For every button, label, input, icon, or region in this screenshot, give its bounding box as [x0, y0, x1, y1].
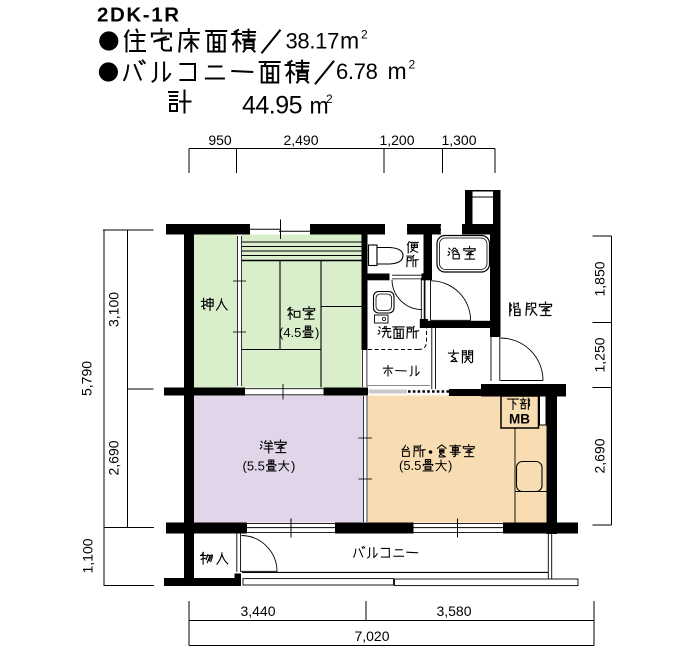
svg-text:(5.5: (5.5	[243, 459, 265, 474]
svg-text:5,790: 5,790	[79, 361, 95, 396]
svg-text:3,580: 3,580	[436, 603, 471, 619]
svg-text:1,200: 1,200	[379, 132, 414, 148]
svg-text:): )	[315, 325, 319, 340]
svg-text:1,250: 1,250	[592, 337, 608, 372]
svg-text:2: 2	[361, 28, 368, 42]
svg-text:2,690: 2,690	[106, 440, 122, 475]
svg-text:(5.5: (5.5	[399, 458, 421, 473]
svg-text:3,440: 3,440	[240, 603, 275, 619]
svg-text:MB: MB	[509, 412, 530, 427]
svg-text:): )	[448, 458, 452, 473]
svg-text:1,850: 1,850	[592, 261, 608, 296]
svg-text:2,690: 2,690	[592, 438, 608, 473]
svg-text:(4.5: (4.5	[279, 325, 301, 340]
svg-text:950: 950	[208, 132, 232, 148]
svg-text:m: m	[388, 58, 407, 84]
svg-text:2: 2	[326, 92, 333, 106]
svg-text:2,490: 2,490	[283, 132, 318, 148]
svg-text:1,300: 1,300	[441, 132, 476, 148]
svg-text:7,020: 7,020	[354, 628, 389, 644]
svg-text:38.17: 38.17	[286, 29, 340, 54]
svg-text:): )	[291, 459, 295, 474]
svg-text:44.95: 44.95	[242, 92, 302, 120]
svg-text:2: 2	[409, 58, 416, 72]
svg-text:1,100: 1,100	[80, 538, 96, 573]
svg-text:3,100: 3,100	[106, 292, 122, 327]
svg-text:m: m	[340, 28, 359, 54]
svg-text:2DK-1R: 2DK-1R	[97, 4, 181, 27]
svg-text:6.78: 6.78	[336, 59, 378, 84]
